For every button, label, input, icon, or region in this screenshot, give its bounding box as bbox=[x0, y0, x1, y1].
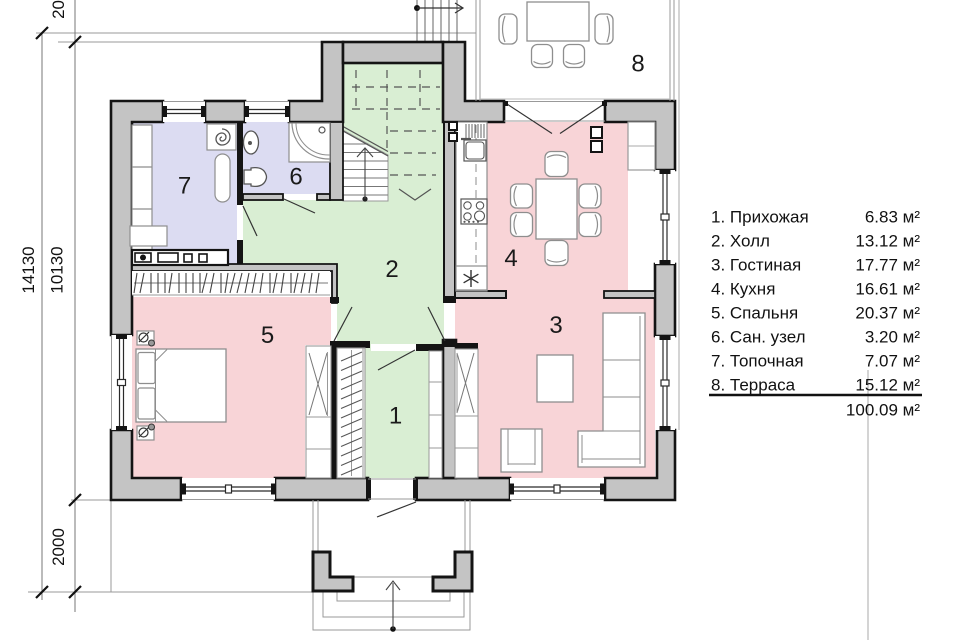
svg-text:4. Кухня: 4. Кухня bbox=[711, 280, 775, 299]
svg-text:2: 2 bbox=[385, 256, 398, 283]
svg-text:2000: 2000 bbox=[49, 528, 68, 566]
svg-text:7.07 м²: 7.07 м² bbox=[865, 352, 920, 371]
svg-text:1. Прихожая: 1. Прихожая bbox=[711, 208, 809, 227]
svg-text:15.12 м²: 15.12 м² bbox=[855, 376, 920, 395]
svg-text:6. Сан. узел: 6. Сан. узел bbox=[711, 328, 806, 347]
svg-text:3: 3 bbox=[549, 312, 562, 339]
svg-text:8. Терраса: 8. Терраса bbox=[711, 376, 796, 395]
svg-text:5: 5 bbox=[261, 322, 274, 349]
svg-text:6: 6 bbox=[289, 164, 302, 191]
svg-text:14130: 14130 bbox=[19, 246, 38, 293]
svg-text:4: 4 bbox=[504, 245, 517, 272]
svg-text:2000: 2000 bbox=[49, 0, 68, 19]
svg-text:8: 8 bbox=[631, 51, 644, 78]
svg-text:5. Спальня: 5. Спальня bbox=[711, 304, 798, 323]
svg-text:7: 7 bbox=[178, 173, 191, 200]
svg-text:1: 1 bbox=[389, 403, 402, 430]
svg-text:2. Холл: 2. Холл bbox=[711, 232, 770, 251]
svg-text:100.09 м²: 100.09 м² bbox=[846, 401, 920, 420]
svg-text:13.12 м²: 13.12 м² bbox=[855, 232, 920, 251]
svg-text:3.20 м²: 3.20 м² bbox=[865, 328, 920, 347]
svg-text:16.61 м²: 16.61 м² bbox=[855, 280, 920, 299]
svg-text:6.83 м²: 6.83 м² bbox=[865, 208, 920, 227]
svg-text:3. Гостиная: 3. Гостиная bbox=[711, 256, 801, 275]
svg-text:7. Топочная: 7. Топочная bbox=[711, 352, 804, 371]
svg-text:17.77 м²: 17.77 м² bbox=[855, 256, 920, 275]
svg-text:10130: 10130 bbox=[48, 246, 67, 293]
svg-text:20.37 м²: 20.37 м² bbox=[855, 304, 920, 323]
